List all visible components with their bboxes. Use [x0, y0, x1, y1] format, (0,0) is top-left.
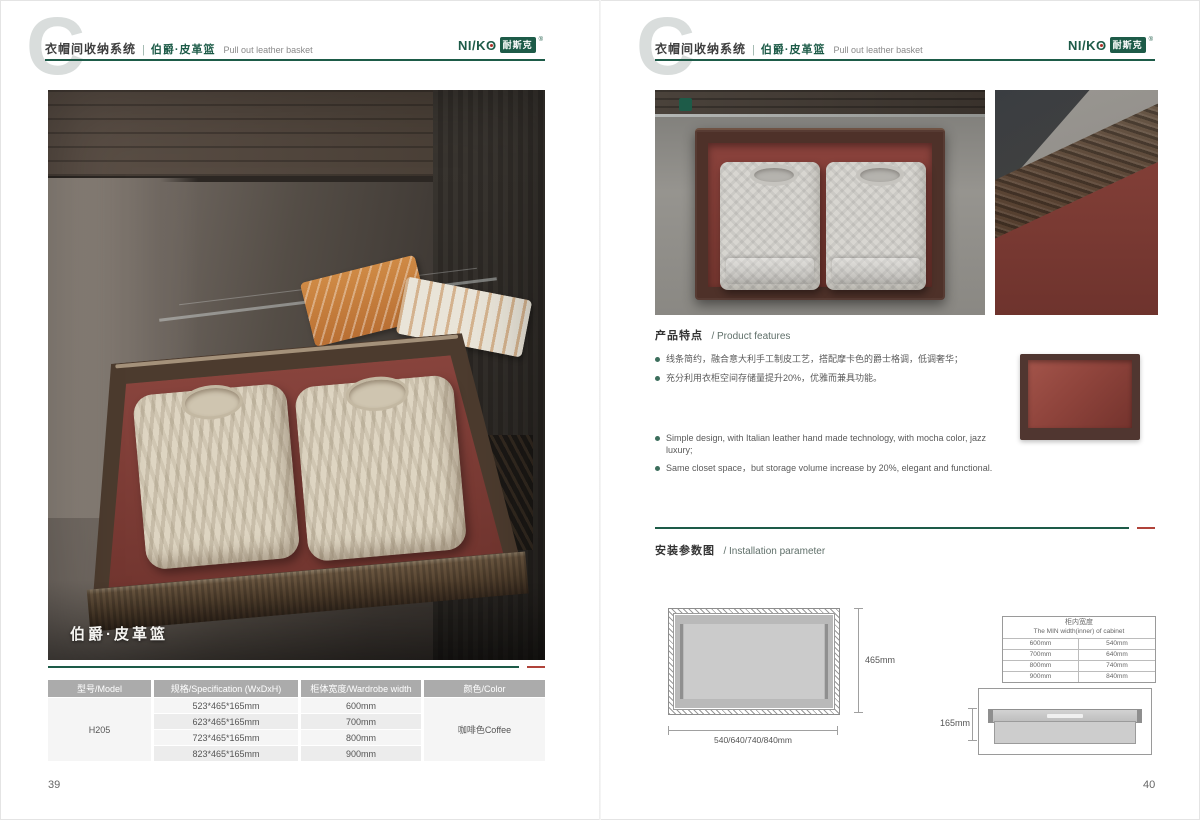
width-cell: 900mm: [301, 746, 421, 761]
installation-heading-cn: 安装参数图: [655, 545, 715, 557]
min-width-row: 600mm 540mm: [1003, 638, 1155, 649]
model-cell: H205: [48, 698, 151, 761]
bullet-dot-icon: [655, 376, 660, 381]
brand-logo-latin: NI/KO: [1068, 38, 1107, 53]
header-separator: |: [142, 44, 145, 56]
brand-logo-cn: 耐斯克: [500, 37, 536, 53]
min-width-cell: 600mm: [1003, 639, 1079, 649]
width-dimension-line: [668, 730, 838, 731]
feature-bullet-text: 线条简约，融合意大利手工制皮工艺，搭配摩卡色的爵士格调，低调奢华；: [666, 354, 963, 366]
min-width-cell: 700mm: [1003, 650, 1079, 660]
divider-green-segment: [655, 527, 1129, 529]
brand-logo-latin: NI/KO: [458, 38, 497, 53]
bullet-dot-icon: [655, 357, 660, 362]
page-left: C 衣帽间收纳系统 | 伯爵·皮革篮 Pull out leather bask…: [0, 0, 600, 820]
page-number: 39: [48, 779, 60, 791]
depth-dimension-line: [858, 608, 859, 713]
min-width-cell: 540mm: [1079, 639, 1155, 649]
diagram-cabinet-outline: [668, 608, 840, 715]
product-title-cn: 伯爵·皮革篮: [151, 41, 216, 57]
brand-logo: NI/KO 耐斯克 ®: [458, 37, 543, 53]
spec-cell: 723*465*165mm: [154, 730, 298, 745]
spec-cell: 823*465*165mm: [154, 746, 298, 761]
diagram-brand-stripe: [1047, 714, 1083, 718]
min-width-title-cn: 柜内宽度: [1004, 619, 1154, 628]
feature-bullet: Same closet space，but storage volume inc…: [655, 463, 1005, 475]
feature-bullet: 线条简约，融合意大利手工制皮工艺，搭配摩卡色的爵士格调，低调奢华；: [655, 354, 1005, 366]
feature-bullets-cn: 线条简约，融合意大利手工制皮工艺，搭配摩卡色的爵士格调，低调奢华； 充分利用衣柜…: [655, 354, 1005, 384]
diagram-right-rail: [825, 624, 828, 699]
brand-logo: NI/KO 耐斯克 ®: [1068, 37, 1153, 53]
detail-photo-corner: [995, 90, 1158, 315]
spec-cell: 523*465*165mm: [154, 698, 298, 713]
color-cell: 咖啡色Coffee: [424, 698, 545, 761]
logo-dot-icon: [490, 44, 493, 47]
feature-bullet: Simple design, with Italian leather hand…: [655, 433, 1005, 456]
bullet-dot-icon: [655, 466, 660, 471]
min-width-cell: 800mm: [1003, 661, 1079, 671]
photo-vignette: [48, 90, 545, 660]
features-heading: 产品特点 / Product features: [655, 326, 790, 344]
catalog-spread: C 衣帽间收纳系统 | 伯爵·皮革篮 Pull out leather bask…: [0, 0, 1200, 820]
thumbnail-basket-interior: [1028, 360, 1132, 428]
feature-bullet-text: Simple design, with Italian leather hand…: [666, 433, 1005, 456]
section-divider: [48, 666, 545, 668]
folded-sweater-left: [720, 162, 820, 290]
height-dimension-line: [972, 708, 973, 741]
diagram-cabinet-front: [978, 688, 1152, 755]
feature-bullets-en: Simple design, with Italian leather hand…: [655, 433, 1005, 475]
feature-bullet: 充分利用衣柜空间存储量提升20%，优雅而兼具功能。: [655, 373, 1005, 385]
detail-photo-top-view: [655, 90, 985, 315]
main-product-photo: 伯爵·皮革篮: [48, 90, 545, 660]
spec-table-header-color: 颜色/Color: [424, 680, 545, 697]
min-width-table-header: 柜内宽度 The MIN width(inner) of cabinet: [1003, 617, 1155, 638]
basket-leather-interior: [708, 143, 932, 287]
brand-logo-cn: 耐斯克: [1110, 37, 1146, 53]
basket-top-view: [695, 128, 945, 300]
logo-dot-icon: [1100, 44, 1103, 47]
diagram-basket-frame: [675, 615, 833, 708]
width-cell: 600mm: [301, 698, 421, 713]
registered-mark: ®: [1149, 37, 1153, 43]
depth-dimension-label: 465mm: [865, 655, 895, 665]
spec-table-header-model: 型号/Model: [48, 680, 151, 697]
photo-glass-edge: [655, 114, 985, 117]
min-width-row: 800mm 740mm: [1003, 660, 1155, 671]
front-view-diagram: 165mm: [940, 686, 1160, 761]
divider-green-segment: [48, 666, 519, 668]
page-right: C 衣帽间收纳系统 | 伯爵·皮革篮 Pull out leather bask…: [600, 0, 1200, 820]
min-width-row: 900mm 840mm: [1003, 671, 1155, 682]
photo-caption: 伯爵·皮革篮: [70, 623, 168, 644]
features-heading-cn: 产品特点: [655, 330, 703, 342]
width-dimension-label: 540/640/740/840mm: [668, 735, 838, 745]
height-dimension-label: 165mm: [940, 718, 970, 728]
diagram-left-rail: [680, 624, 683, 699]
thumbnail-basket-frame: [1020, 354, 1140, 440]
width-cell: 800mm: [301, 730, 421, 745]
product-thumbnail: [1018, 350, 1142, 442]
diagram-inner-clearance: [673, 613, 835, 710]
registered-mark: ®: [539, 37, 543, 43]
page-header: 衣帽间收纳系统 | 伯爵·皮革篮 Pull out leather basket: [45, 40, 313, 57]
series-title: 衣帽间收纳系统: [655, 40, 746, 57]
feature-bullet-text: 充分利用衣柜空间存储量提升20%，优雅而兼具功能。: [666, 373, 882, 385]
min-width-cell: 740mm: [1079, 661, 1155, 671]
features-heading-en: / Product features: [711, 331, 790, 342]
bullet-dot-icon: [655, 436, 660, 441]
width-cell: 700mm: [301, 714, 421, 729]
photo-wood-shelf: [655, 90, 985, 114]
diagram-basket-body: [994, 721, 1136, 744]
min-width-cell: 840mm: [1079, 672, 1155, 682]
section-divider: [655, 527, 1155, 529]
product-title-en: Pull out leather basket: [224, 45, 313, 55]
product-title-en: Pull out leather basket: [834, 45, 923, 55]
top-view-diagram: 465mm 540/640/740/840mm: [660, 600, 910, 760]
min-width-row: 700mm 640mm: [1003, 649, 1155, 660]
spec-table-header-spec: 规格/Specification (WxDxH): [154, 680, 298, 697]
divider-red-segment: [1137, 527, 1155, 529]
header-underline: [45, 59, 545, 61]
brand-badge: [679, 98, 692, 111]
feature-bullet-text: Same closet space，but storage volume inc…: [666, 463, 992, 475]
installation-heading-en: / Installation parameter: [723, 546, 825, 557]
header-separator: |: [752, 44, 755, 56]
page-header: 衣帽间收纳系统 | 伯爵·皮革篮 Pull out leather basket: [655, 40, 923, 57]
product-title-cn: 伯爵·皮革篮: [761, 41, 826, 57]
spec-cell: 623*465*165mm: [154, 714, 298, 729]
installation-heading: 安装参数图 / Installation parameter: [655, 541, 825, 559]
folded-sweater-right: [826, 162, 926, 290]
page-number: 40: [1143, 779, 1155, 791]
spec-table-header-width: 柜体宽度/Wardrobe width: [301, 680, 421, 697]
series-title: 衣帽间收纳系统: [45, 40, 136, 57]
min-width-cell: 640mm: [1079, 650, 1155, 660]
spec-table: 型号/Model 规格/Specification (WxDxH) 柜体宽度/W…: [48, 680, 545, 761]
header-underline: [655, 59, 1155, 61]
min-width-cell: 900mm: [1003, 672, 1079, 682]
min-width-title-en: The MIN width(inner) of cabinet: [1004, 628, 1154, 636]
divider-red-segment: [527, 666, 545, 668]
min-width-table: 柜内宽度 The MIN width(inner) of cabinet 600…: [1002, 616, 1156, 683]
